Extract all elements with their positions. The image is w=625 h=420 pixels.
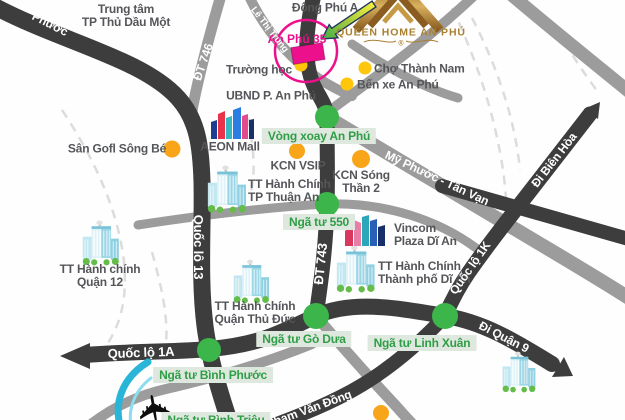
road-label-le-thi-trung: Lê Thị Trung (247, 5, 290, 55)
poi-label-cho-thanh-nam: Chợ Thành Nam (374, 63, 465, 76)
poi-label-ben-xe: Bến xe An Phú (357, 79, 439, 92)
poi-label-tt-quan-12-line2: Quận 12 (60, 276, 141, 289)
junction-label-nga-tu-binh-phuoc: Ngã tư Bình Phước (153, 367, 273, 383)
poi-label-san-golf: Sân Gofl Sông Bé (68, 143, 166, 156)
poi-label-truong-hoc: Trường học (226, 64, 292, 77)
poi-label-kcn-vsip: KCN VSIP (270, 160, 325, 173)
poi-label-tt-thu-duc: TT Hành chính Quận Thủ Đức (215, 300, 296, 326)
road-label-quoc-lo-13: Quốc lộ 13 (192, 215, 204, 279)
brand-registered-mark: ® (398, 41, 403, 48)
junction-label-nga-tu-linh-xuan: Ngã tư Linh Xuân (368, 335, 477, 351)
poi-label-trung-tam: Trung tâm TP Thủ Dầu Một (82, 3, 170, 29)
road-label-di-quan-9: Đi Quận 9 (477, 319, 531, 354)
poi-label-tt-thu-duc-line2: Quận Thủ Đức (215, 313, 296, 326)
map-labels: QUEEN HOME AN PHÚ ® An Phú 35 Trung tâm … (0, 0, 625, 420)
poi-label-ubnd-an-phu: UBND P. An Phú (226, 90, 316, 103)
road-label-my-phuoc-tan-van: Mỹ Phước - Tân Vạn (383, 149, 490, 208)
road-label-phuoc: Phước (30, 10, 70, 38)
road-label-di-bien-hoa: Đi Biên Hòa (529, 131, 579, 190)
road-label-dt-743: ĐT 743 (313, 243, 329, 285)
poi-label-kcn-song-than-line2: Thần 2 (332, 182, 390, 195)
poi-label-tt-thuan-an-line2: TP Thuận An (248, 191, 331, 204)
poi-label-dong-phu-a: Đông Phú A (292, 2, 358, 15)
poi-label-aeon-mall: AEON Mall (200, 141, 260, 154)
poi-label-tt-quan-12: TT Hành chính Quận 12 (60, 263, 141, 289)
location-map: ✈ QUEEN HOME AN PHÚ ® An Phú 35 Trung tâ… (0, 0, 625, 420)
poi-label-kcn-song-than: KCN Sóng Thần 2 (332, 169, 390, 195)
poi-label-tt-thuan-an: TT Hành Chính TP Thuận An (248, 178, 331, 204)
road-label-dt-746: ĐT 746 (191, 42, 215, 82)
poi-label-vincom: Vincom Plaza Dĩ An (394, 222, 457, 248)
brand-name: QUEEN HOME AN PHÚ (336, 28, 466, 39)
junction-label-vong-xoay-an-phu: Vòng xoay An Phú (262, 128, 376, 144)
road-label-quoc-lo-1a: Quốc lộ 1A (107, 346, 174, 360)
junction-label-nga-tu-go-dua: Ngã tư Gò Dưa (256, 331, 351, 347)
junction-label-nga-tu-550: Ngã tư 550 (283, 214, 355, 230)
road-label-pham-van-dong: Phạm Văn Đồng (265, 388, 353, 420)
junction-label-nga-tu-binh-trieu: Ngã tư Bình Triệu (161, 412, 270, 420)
poi-label-trung-tam-line2: TP Thủ Dầu Một (82, 16, 170, 29)
poi-label-vincom-line2: Plaza Dĩ An (394, 235, 457, 248)
